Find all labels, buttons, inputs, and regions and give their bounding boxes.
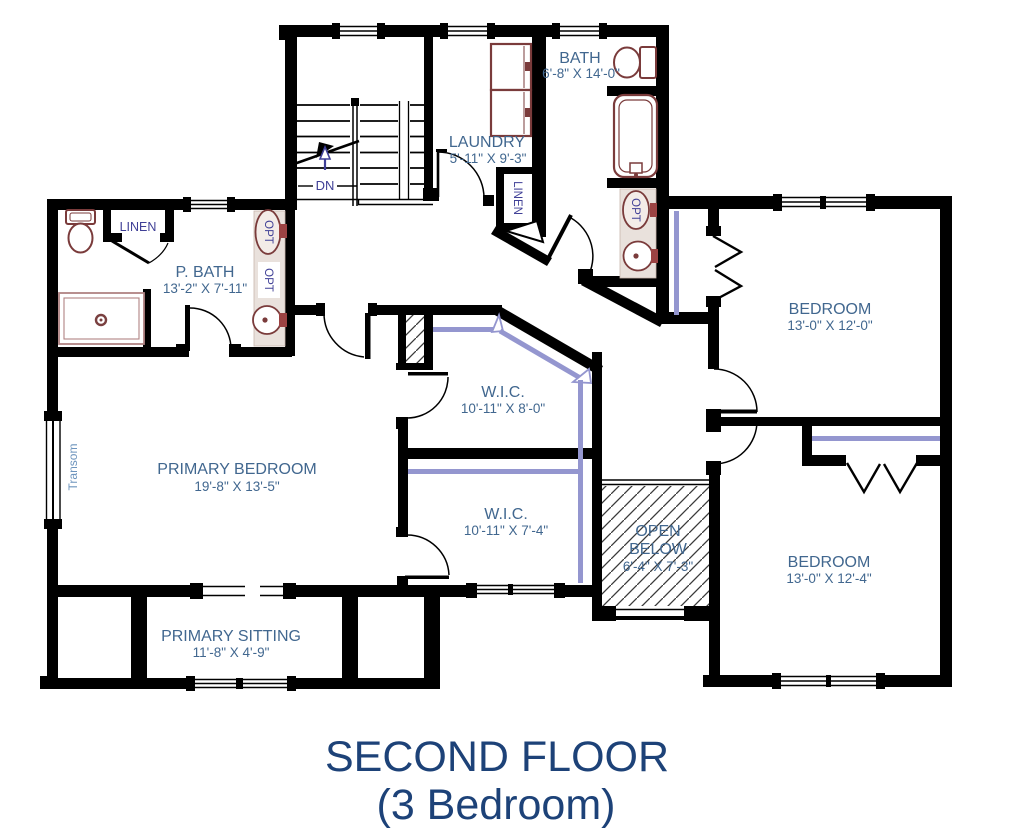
svg-text:10'-11" X 8'-0": 10'-11" X 8'-0"	[461, 401, 545, 416]
svg-text:BELOW: BELOW	[629, 541, 688, 558]
svg-text:19'-8" X 13'-5": 19'-8" X 13'-5"	[194, 479, 279, 494]
svg-text:10'-11" X 7'-4": 10'-11" X 7'-4"	[464, 523, 548, 538]
svg-text:11'-8" X 4'-9": 11'-8" X 4'-9"	[193, 645, 270, 660]
svg-text:6'-8" X 14'-0": 6'-8" X 14'-0"	[542, 66, 620, 81]
svg-text:13'-0" X 12'-0": 13'-0" X 12'-0"	[787, 318, 872, 333]
svg-text:5'-11" X 9'-3": 5'-11" X 9'-3"	[450, 151, 527, 166]
svg-text:LINEN: LINEN	[120, 220, 157, 234]
svg-text:BATH: BATH	[559, 50, 600, 67]
svg-text:LINEN: LINEN	[511, 181, 523, 215]
svg-text:W.I.C.: W.I.C.	[484, 506, 528, 523]
svg-text:BEDROOM: BEDROOM	[788, 554, 871, 571]
svg-text:(3 Bedroom): (3 Bedroom)	[377, 781, 616, 829]
svg-text:OPT: OPT	[629, 198, 641, 222]
svg-text:Transom: Transom	[66, 444, 80, 491]
svg-text:W.I.C.: W.I.C.	[481, 384, 525, 401]
svg-text:SECOND FLOOR: SECOND FLOOR	[325, 733, 669, 781]
svg-text:OPT: OPT	[262, 220, 274, 244]
svg-text:BEDROOM: BEDROOM	[789, 301, 872, 318]
svg-text:PRIMARY BEDROOM: PRIMARY BEDROOM	[157, 461, 316, 478]
svg-text:6'-4" X 7'-3": 6'-4" X 7'-3"	[623, 559, 693, 574]
svg-text:13'-2" X 7'-11": 13'-2" X 7'-11"	[163, 281, 247, 296]
svg-text:13'-0" X 12'-4": 13'-0" X 12'-4"	[786, 571, 871, 586]
svg-text:P. BATH: P. BATH	[176, 264, 235, 281]
svg-text:OPEN: OPEN	[635, 523, 680, 540]
svg-text:DN: DN	[316, 178, 335, 193]
svg-text:PRIMARY SITTING: PRIMARY SITTING	[161, 628, 301, 645]
svg-text:OPT: OPT	[262, 268, 274, 292]
svg-text:LAUNDRY: LAUNDRY	[449, 134, 526, 151]
